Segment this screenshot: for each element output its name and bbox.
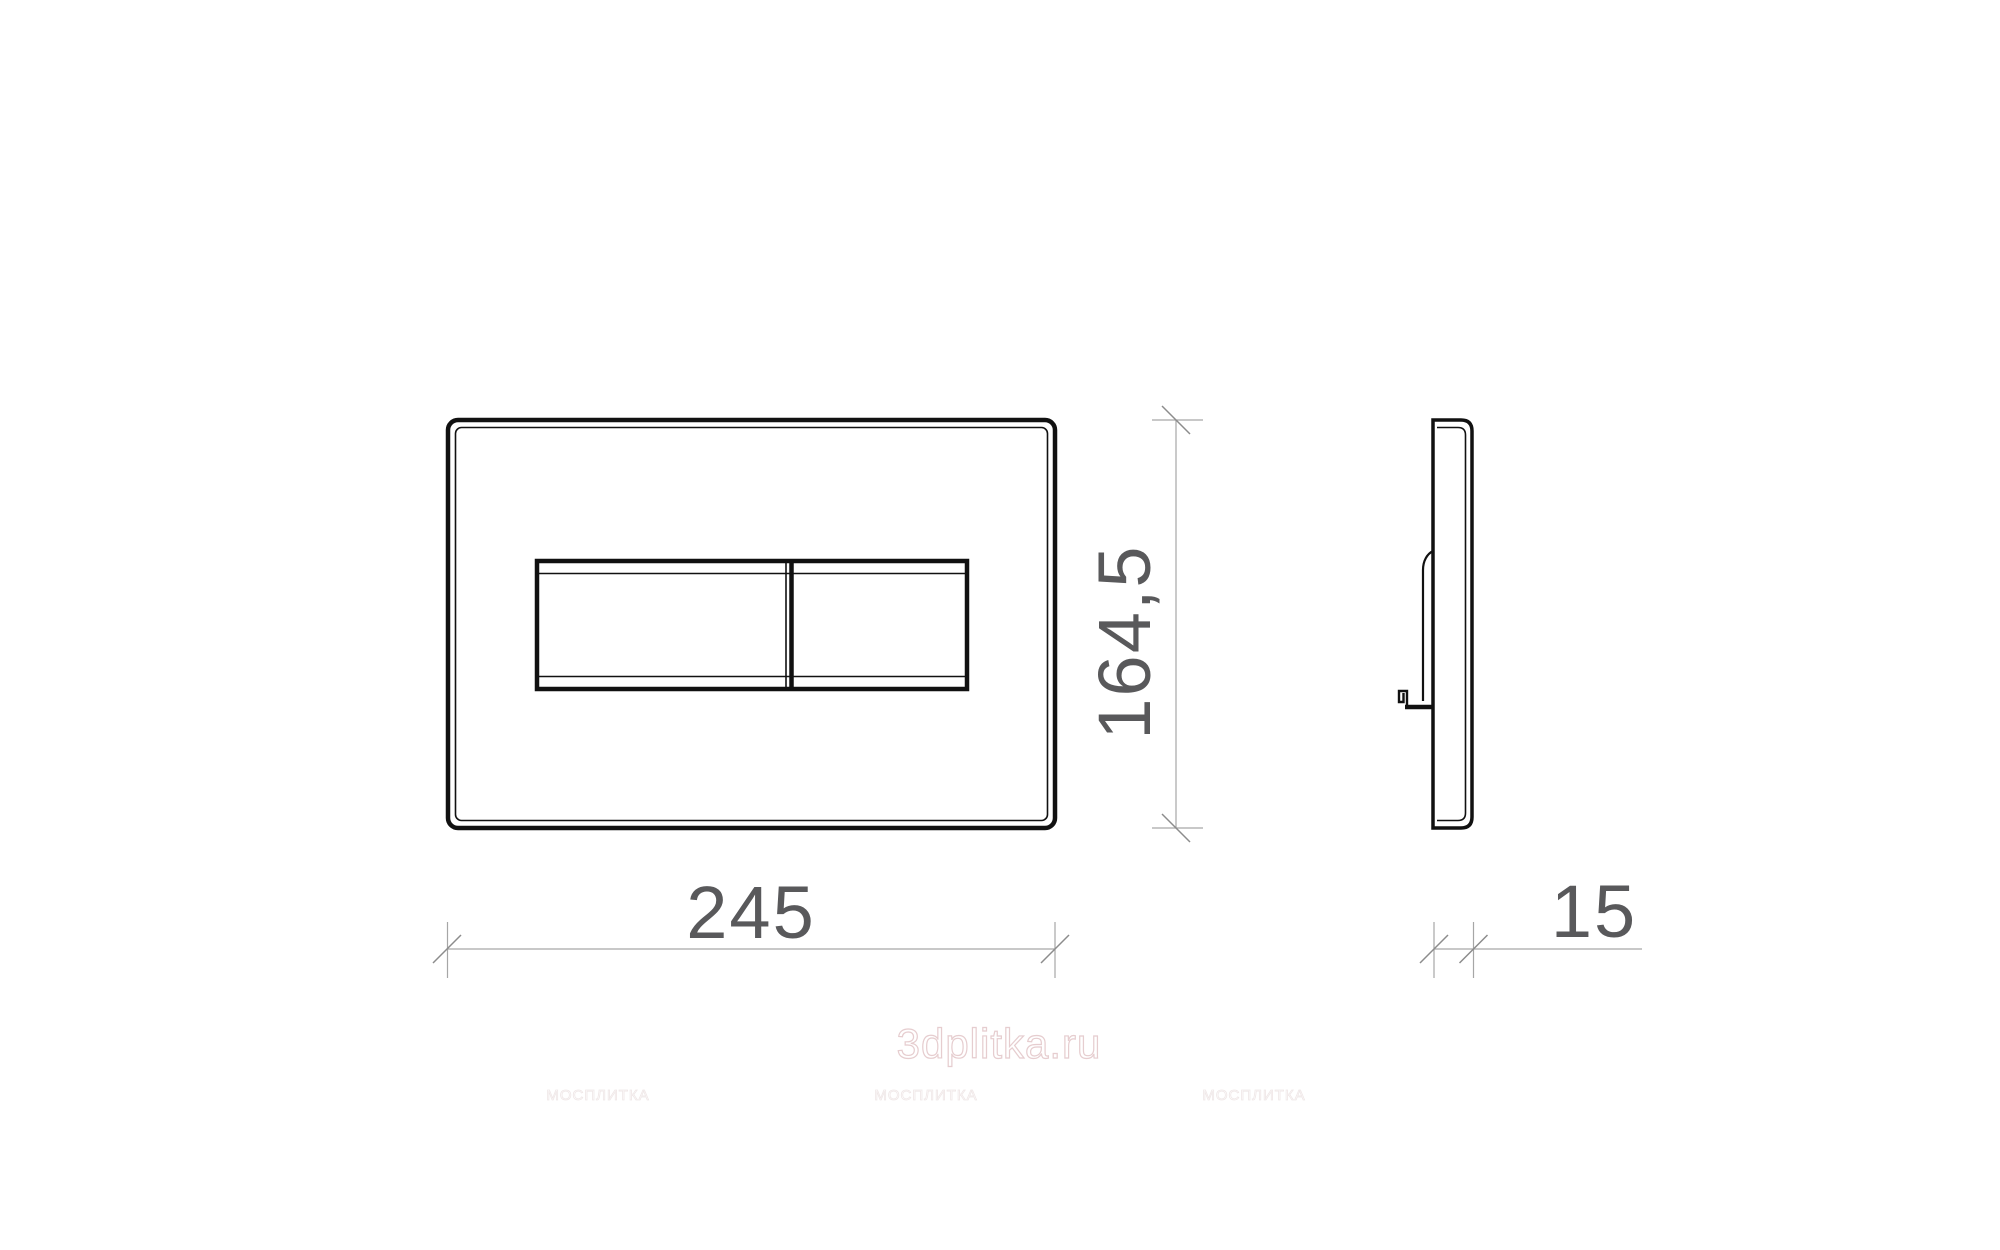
depth-dimension-label: 15: [1551, 870, 1637, 953]
watermarks: 3dplitka.ru МОСПЛИТКА МОСПЛИТКА МОСПЛИТК…: [546, 1020, 1305, 1104]
front-view: [448, 420, 1055, 828]
technical-drawing-svg: 245 164,5 15 3dplitka.ru МОСПЛИТКА МОСПЛ…: [0, 0, 2000, 1250]
side-plate-inner-line: [1437, 428, 1466, 821]
width-dimension-label: 245: [686, 871, 815, 954]
watermark-tile-mark-2: МОСПЛИТКА: [874, 1087, 977, 1104]
side-spring-clip: [1399, 691, 1407, 705]
height-dimension-label: 164,5: [1083, 544, 1166, 739]
buttons-outer-frame: [537, 561, 967, 689]
watermark-brand: 3dplitka.ru: [897, 1020, 1102, 1067]
side-view: [1399, 420, 1472, 828]
watermark-tile-mark-1: МОСПЛИТКА: [546, 1087, 649, 1104]
watermark-tile-mark-3: МОСПЛИТКА: [1202, 1087, 1305, 1104]
plate-inner-face-line: [456, 428, 1048, 821]
drawing-canvas: 245 164,5 15 3dplitka.ru МОСПЛИТКА МОСПЛ…: [0, 0, 2000, 1250]
flush-buttons: [537, 561, 967, 689]
